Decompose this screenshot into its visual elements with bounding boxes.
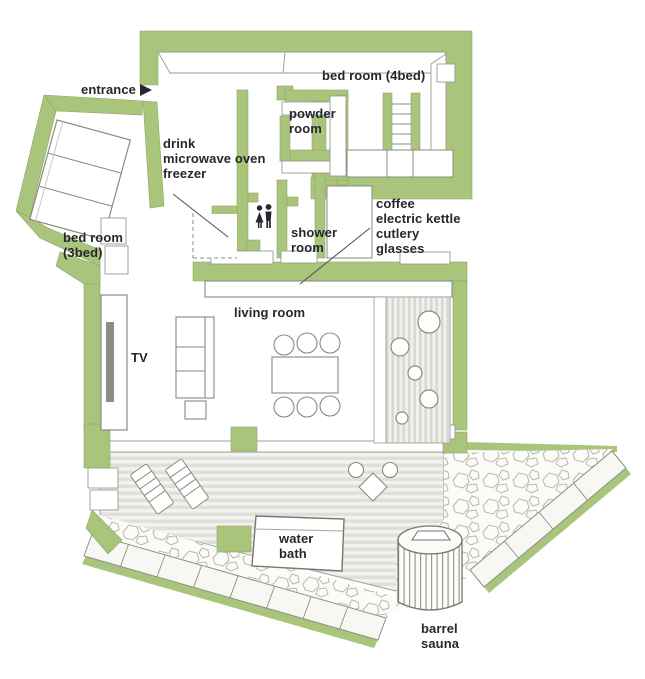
wall-base [193,262,467,281]
counter-bar [205,281,452,297]
slat-panel [374,297,450,443]
floor-plan-page: entrance bed room (4bed) powder room dri… [0,0,645,679]
side-table [185,401,206,419]
label-powder-room: powder room [289,106,336,136]
sofa [176,317,214,419]
label-entrance: entrance [66,82,136,97]
restroom-icon [256,204,272,228]
deck-planter-upper [231,427,257,451]
label-bedroom4: bed room (4bed) [322,68,425,83]
entrance-arrow-icon [140,84,152,96]
barrel-sauna [398,526,462,610]
label-water-bath: water bath [279,531,313,561]
wall-living-right [453,281,467,430]
label-barrel-sauna: barrel sauna [421,621,459,651]
label-kitchen-items: drink microwave oven freezer [163,136,266,181]
kitchen-counter [193,213,237,258]
label-tv: TV [131,350,148,365]
label-shower-room: shower room [291,225,337,255]
wall-living-left [84,266,100,428]
floor-plan-drawing [0,0,645,679]
dining-table [272,357,338,393]
label-bedroom3: bed room (3bed) [63,230,123,260]
dining-set [272,333,340,417]
label-counter-items: coffee electric kettle cutlery glasses [376,196,461,256]
tv-unit [101,295,127,430]
label-living-room: living room [234,305,305,320]
wall-wc-middle [277,180,287,258]
tv-screen [106,322,114,402]
deck-planter-lower [217,526,251,552]
